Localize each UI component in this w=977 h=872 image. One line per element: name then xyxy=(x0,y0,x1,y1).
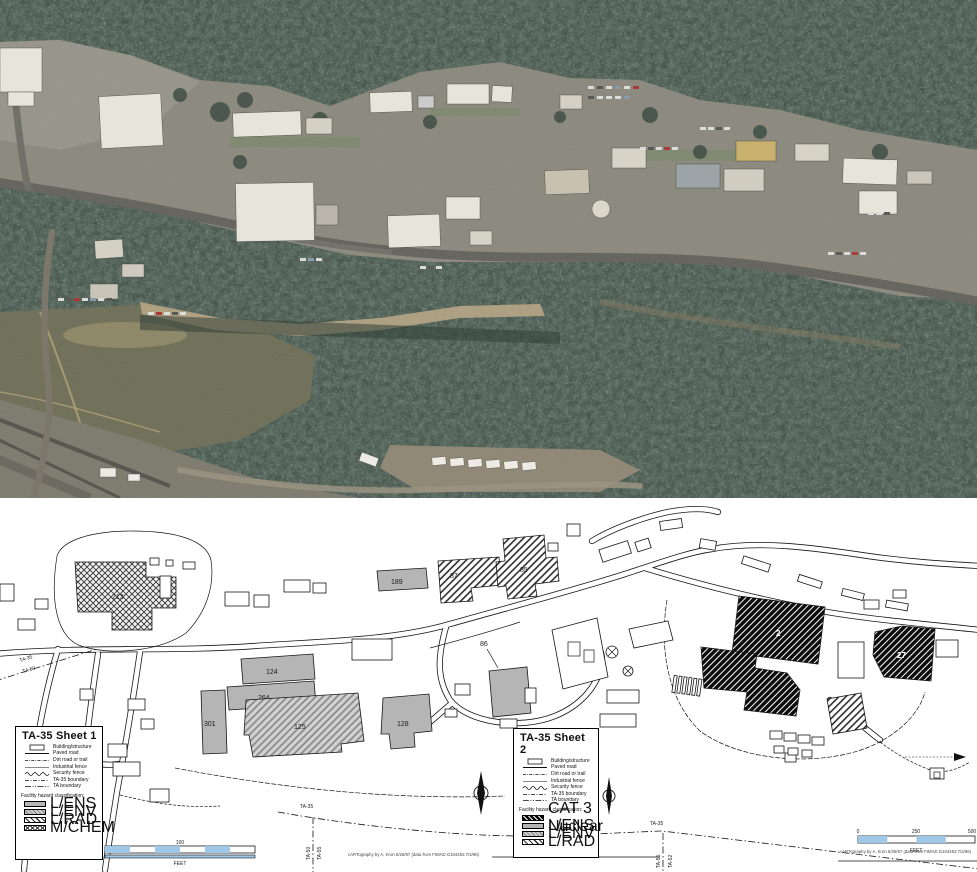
ta-boundaries xyxy=(0,649,977,872)
legend-sheet2-title: TA-35 Sheet 2 xyxy=(520,732,594,756)
screenshot: TA-35 TA-50 TA-35 TA-50 TA-55 TA-35 TA-5… xyxy=(0,0,977,872)
courtyard-building xyxy=(552,618,608,689)
site-map: TA-35 TA-50 TA-35 TA-50 TA-55 TA-35 TA-5… xyxy=(0,498,977,872)
ta-label-5: TA-35 xyxy=(650,821,663,827)
legend-item-label: Security fence xyxy=(551,785,583,790)
hazard-item-mchem: M/CHEM xyxy=(24,824,98,832)
building-85: 85 xyxy=(496,535,559,599)
lens-swatch xyxy=(522,823,544,829)
hazard-label: M/CHEM xyxy=(50,819,115,837)
building-87: 87 xyxy=(438,557,501,603)
legend-item-label: Dirt road or trail xyxy=(551,772,585,777)
building-2-label: 2 xyxy=(776,629,781,638)
lens-swatch xyxy=(24,801,46,807)
building-27-label: 27 xyxy=(897,651,906,660)
lrad-swatch xyxy=(24,817,46,823)
legend-item-label: TA boundary xyxy=(53,784,81,789)
ta-label-2: TA-35 xyxy=(300,804,313,810)
lrad-building-east xyxy=(827,693,867,734)
photo-grain xyxy=(0,0,977,498)
ta-boundary-line-icon xyxy=(522,797,548,804)
legend-sheet2: TA-35 Sheet 2 Building/structure Paved r… xyxy=(513,728,599,858)
lenv-swatch xyxy=(522,831,544,837)
building-2: 2 xyxy=(701,596,825,716)
building-86-label: 86 xyxy=(480,641,488,648)
ta-label-0: TA-35 xyxy=(19,654,34,664)
north-arrow-sheet2 xyxy=(603,777,615,815)
east-arrow xyxy=(905,753,966,761)
credit-center: cARTography by A. Kron 6/26/97 (data fro… xyxy=(348,852,480,857)
lrad-swatch xyxy=(522,839,544,845)
legend-item-label: Industrial fence xyxy=(53,765,87,770)
aerial-photo xyxy=(0,0,977,498)
building-85-label: 85 xyxy=(520,567,528,574)
building-213-label: 213 xyxy=(112,594,124,601)
transformer-yard xyxy=(672,675,702,696)
legend-item-label: Paved road xyxy=(551,765,577,770)
building-301: 301 xyxy=(201,690,227,754)
ta-label-4: TA-55 xyxy=(317,847,323,860)
legend-item-label: Paved road xyxy=(53,751,79,756)
cat3-swatch xyxy=(522,815,544,821)
building-125-label: 125 xyxy=(294,724,306,731)
scalebar-east-tick0: 0 xyxy=(857,829,860,835)
legend-item-label: Building/structure xyxy=(53,745,92,750)
ta-label-3: TA-50 xyxy=(306,847,312,860)
legend-item-label: Industrial fence xyxy=(551,779,585,784)
lenv-swatch xyxy=(24,809,46,815)
building-27: 27 xyxy=(873,626,935,681)
legend-sheet1-title: TA-35 Sheet 1 xyxy=(22,730,98,742)
scalebar-east-tick2: 500 xyxy=(968,829,977,835)
legend-item-label: TA-35 boundary xyxy=(53,778,88,783)
storage-tanks xyxy=(606,646,633,676)
scalebar-east-tick1: 250 xyxy=(912,829,921,835)
building-189: 189 xyxy=(377,568,428,591)
building-87-label: 87 xyxy=(450,573,458,580)
hazard-label: L/RAD xyxy=(548,833,595,851)
mchem-swatch xyxy=(24,825,46,831)
legend-item-label: Building/structure xyxy=(551,759,590,764)
legend-item-label: Security fence xyxy=(53,771,85,776)
legend-sheet1: TA-35 Sheet 1 Building/structure Paved r… xyxy=(15,726,103,860)
ta-label-7: TA-52 xyxy=(668,855,674,868)
ta-label-1: TA-50 xyxy=(22,665,37,675)
building-128-label: 128 xyxy=(397,721,409,728)
building-301-label: 301 xyxy=(204,721,216,728)
building-124: 124 xyxy=(241,654,315,684)
ta-label-6: TA-55 xyxy=(656,855,662,868)
hazard-item-lrad: L/RAD xyxy=(522,838,594,846)
scalebar-west-tick: 100 xyxy=(176,840,185,846)
legend-item-label: TA-35 boundary xyxy=(551,792,586,797)
site-map-canvas: TA-35 TA-50 TA-35 TA-50 TA-55 TA-35 TA-5… xyxy=(0,498,977,872)
legend-item-ta-boundary: TA boundary xyxy=(24,784,98,791)
building-213: 213 xyxy=(75,558,195,630)
building-124-label: 124 xyxy=(266,669,278,676)
north-arrow-sheet1 xyxy=(474,771,488,815)
legend-item-label: Dirt road or trail xyxy=(53,758,87,763)
aerial-photo-canvas xyxy=(0,0,977,498)
scalebar-west: 100 FEET xyxy=(105,840,255,867)
scalebar-west-unit: FEET xyxy=(174,861,187,867)
building-125: 125 xyxy=(244,693,364,757)
ta-boundary-line-icon xyxy=(24,783,50,790)
building-86: 86 xyxy=(480,641,531,717)
building-189-label: 189 xyxy=(391,579,403,586)
credit-east: cARTography by A. Kron 6/26/97 (data fro… xyxy=(840,849,972,854)
building-128: 128 xyxy=(381,694,432,749)
